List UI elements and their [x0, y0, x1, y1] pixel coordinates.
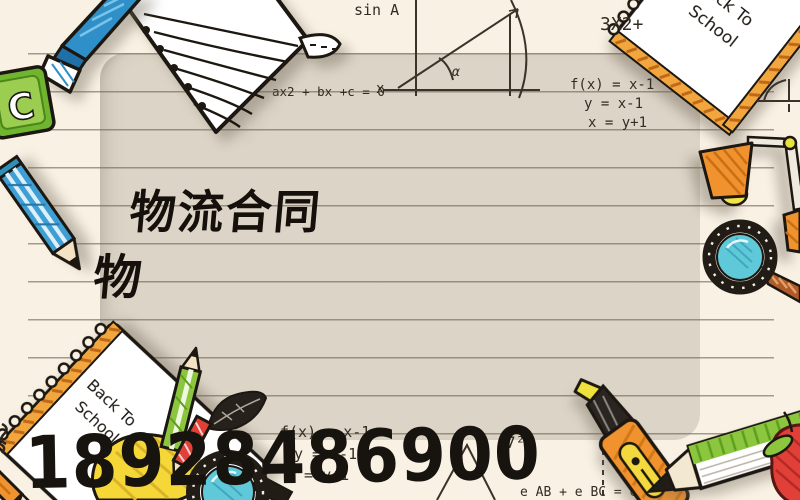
geometry-sketch-doodle [383, 0, 540, 98]
main-title: 物流合同 [127, 176, 325, 242]
quadratic-label: ax2 + bx +c = 0 [272, 84, 385, 99]
equations-top-right: f(x) = x-1 y = x-1 x = y+1 [570, 77, 654, 131]
y-equation: y = x-1 [584, 96, 643, 112]
back-to-school-banner: sin A α x ax2 + bx +c = 0 [0, 0, 800, 500]
title-second-line: 物 [91, 238, 145, 308]
notepad-doodle [128, 0, 340, 132]
phone-number: 18928486900 [24, 411, 541, 500]
blue-pencil-doodle [0, 157, 90, 277]
alpha-label: α [452, 65, 460, 80]
sin-label: sin A [354, 1, 399, 19]
letter-block-doodle: C [0, 66, 55, 139]
fx-equation: f(x) = x-1 [570, 77, 654, 93]
x-equation: x = y+1 [588, 115, 647, 131]
cubic-label: 3X2+ [600, 14, 644, 35]
